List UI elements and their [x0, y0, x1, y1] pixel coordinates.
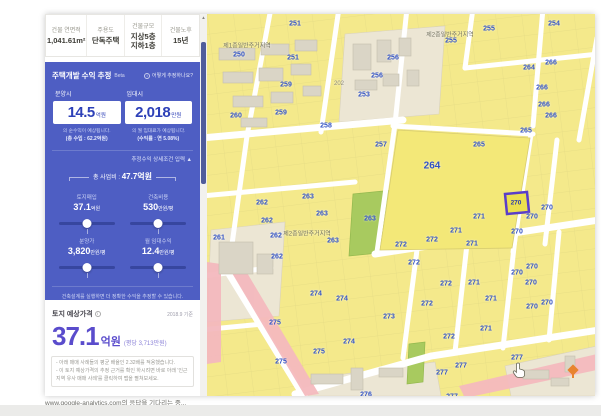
info-cell-floor-area: 건물 연면적 1,041.61m²	[46, 15, 87, 56]
slider-tick	[158, 229, 159, 234]
sale-caption: 의 순수익이 예상됩니다.	[55, 127, 119, 134]
slider-value: 3,820만원/평	[51, 246, 123, 256]
rent-caption: 의 월 임대료가 예상됩니다.	[126, 127, 190, 134]
rent-column: 임대시 2,018 만원 의 월 임대료가 예상됩니다. (수익률 : 연 5.…	[123, 87, 195, 142]
slider-sale-price: 분양가 3,820만원/평	[51, 232, 123, 276]
bottom-strip	[0, 405, 601, 416]
detail-conditions-toggle[interactable]: 추정수익 상세조건 입력 ▲	[45, 151, 200, 163]
how-estimated-label: 어떻게 추정하나요?	[152, 72, 193, 79]
sale-total-revenue: (총 수입 : 62.2억원)	[53, 135, 121, 142]
slider-value: 12.4만원/평	[123, 246, 195, 256]
land-price-note-box: - 아래 매매 사례들의 평균 배율인 2.32배를 적용했습니다. - 이 토…	[51, 356, 194, 387]
building-info-bar: 건물 연면적 1,041.61m² 주용도 단독주택 건물규모 지상5층 지하1…	[45, 14, 200, 57]
info-value: 15년	[173, 36, 188, 45]
map-base-layer	[207, 14, 595, 396]
slider-construction-cost: 건축비용 530만원/평	[123, 188, 195, 232]
land-price-title: 토지 예상가격	[52, 309, 93, 319]
total-cost-label: 총 사업비 : 47.7억원	[93, 171, 152, 182]
slider-tick	[87, 229, 88, 234]
hand-cursor-icon	[512, 362, 526, 378]
slider-label: 월 임대수익	[123, 237, 195, 245]
info-value: 단독주택	[92, 36, 120, 45]
slider-tick	[87, 273, 88, 278]
poi-marker-icon	[567, 364, 579, 378]
as-of-date: 2018.9 기준	[167, 311, 193, 318]
rent-yield: (수익률 : 연 5.08%)	[125, 135, 193, 142]
bracket-line-left	[69, 177, 89, 181]
rent-unit: 만원	[171, 111, 181, 119]
slider-value: 530만원/평	[123, 202, 195, 212]
slider-monthly-rent: 월 임대수익 12.4만원/평	[123, 232, 195, 276]
slider-thumb[interactable]	[154, 263, 163, 272]
land-price-section: 토지 예상가격 i 2018.9 기준 37.1 억원 (평당 3,713만원)…	[45, 300, 200, 396]
design-hint-text: 건축설계를 실행하면 더 정확한 수익을 추정할 수 있습니다.	[52, 286, 193, 300]
sale-unit: 억원	[96, 111, 106, 119]
detail-conditions-label: 추정수익 상세조건 입력	[131, 157, 185, 163]
how-estimated-link[interactable]: i 어떻게 추정하나요?	[144, 72, 193, 79]
slider-label: 토지매입	[51, 193, 123, 201]
bracket-line-right	[156, 177, 176, 181]
large-parcel-264	[380, 130, 530, 250]
map-canvas[interactable]: 제1종일반주거지역제2종일반주거지역제2종일반주거지역2502512512592…	[207, 14, 595, 396]
total-cost-value: 47.7억원	[122, 172, 152, 181]
info-label: 건물규모	[132, 21, 154, 30]
selected-parcel-outline	[505, 192, 529, 214]
panel-header: 주택개발 수익 추정 Beta i 어떻게 추정하나요?	[45, 62, 200, 81]
sale-value-box: 14.5 억원	[53, 101, 121, 124]
panel-title: 주택개발 수익 추정	[52, 70, 111, 81]
page-frame: 건물 연면적 1,041.61m² 주용도 단독주택 건물규모 지상5층 지하1…	[45, 14, 595, 396]
price-per-pyeong: (평당 3,713만원)	[124, 338, 167, 347]
beta-badge: Beta	[114, 73, 124, 79]
panel-scrollbar[interactable]: ▲	[200, 14, 207, 396]
slider-thumb[interactable]	[82, 263, 91, 272]
profit-estimation-panel: 주택개발 수익 추정 Beta i 어떻게 추정하나요? 분양시 14.5 억원…	[45, 62, 200, 300]
slider-thumb[interactable]	[82, 219, 91, 228]
total-cost-row: 총 사업비 : 47.7억원	[45, 171, 200, 182]
rent-value: 2,018	[135, 104, 170, 121]
info-cell-building-age: 건물노후 15년	[162, 15, 199, 56]
info-value: 지상5층 지하1층	[131, 32, 156, 51]
slider-tick	[158, 273, 159, 278]
info-cell-building-scale: 건물규모 지상5층 지하1층	[125, 15, 163, 56]
info-label: 건물 연면적	[52, 25, 81, 34]
info-label: 주용도	[97, 25, 114, 34]
slider-grid: 토지매입 37.1억원 건축비용 530만원/평	[45, 182, 200, 276]
rent-label: 임대시	[127, 89, 193, 98]
slider-label: 건축비용	[123, 193, 195, 201]
sale-label: 분양시	[55, 89, 121, 98]
help-icon: i	[144, 73, 150, 79]
note-line: - 이 토지 예상가격의 추정 근거를 확인 하시려면 바로 아래 '인근 지역…	[56, 368, 189, 384]
slider-thumb[interactable]	[154, 219, 163, 228]
rent-value-box: 2,018 만원	[125, 101, 193, 124]
land-price-value: 37.1	[52, 321, 99, 352]
app-window: 건물 연면적 1,041.61m² 주용도 단독주택 건물규모 지상5층 지하1…	[0, 0, 601, 416]
info-cell-main-use: 주용도 단독주택	[87, 15, 125, 56]
slider-value: 37.1억원	[51, 202, 123, 212]
scrollbar-thumb[interactable]	[201, 42, 206, 184]
note-line: - 아래 매매 사례들의 평균 배율인 2.32배를 적용했습니다.	[56, 360, 189, 368]
sale-column: 분양시 14.5 억원 의 순수익이 예상됩니다. (총 수입 : 62.2억원…	[51, 87, 123, 142]
sale-value: 14.5	[68, 104, 95, 121]
info-label: 건물노후	[170, 25, 192, 34]
slider-land-purchase: 토지매입 37.1억원	[51, 188, 123, 232]
info-icon[interactable]: i	[95, 311, 101, 317]
slider-label: 분양가	[51, 237, 123, 245]
scrollbar-up-icon[interactable]: ▲	[200, 14, 207, 21]
chevron-up-icon: ▲	[187, 157, 192, 163]
info-value: 1,041.61m²	[47, 36, 85, 45]
land-price-unit: 억원	[101, 333, 121, 349]
